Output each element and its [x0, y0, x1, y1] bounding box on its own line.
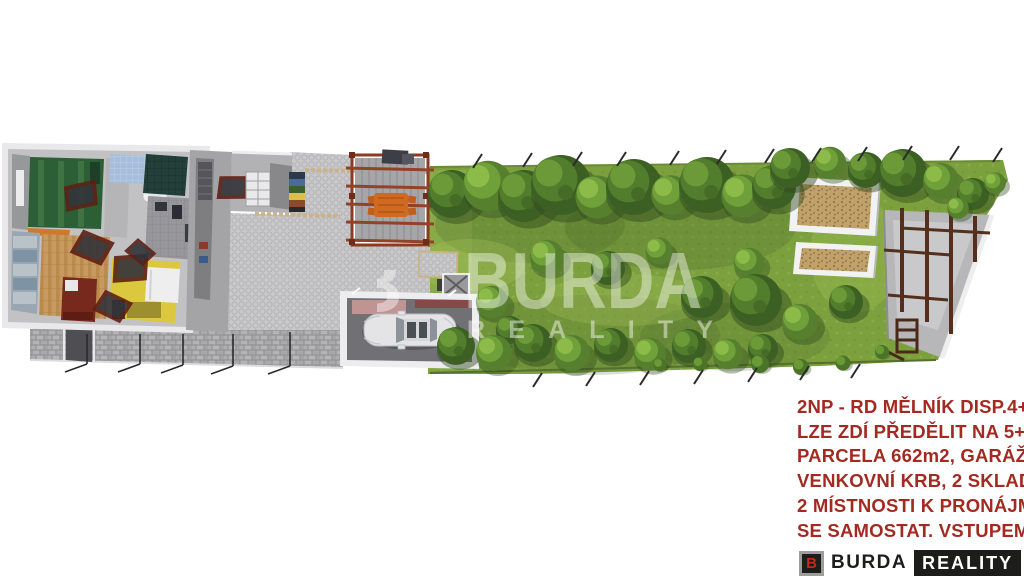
bathroom-blue-tiles [109, 154, 146, 184]
logo-brand-name: BURDA [831, 552, 907, 574]
real-estate-listing-image: B BURDA REALITY 2NP - RD MĚLNÍK DISP.4+1… [0, 0, 1024, 579]
house-upper-floor-cutaway [2, 143, 210, 333]
burda-reality-logo: B BURDA REALITY [799, 550, 1021, 576]
logo-icon-letter: B [806, 556, 817, 571]
watermark-burda: BURDA [464, 236, 702, 325]
storage-boxes [289, 172, 305, 212]
room-dark-tiles [143, 154, 188, 196]
caption-line-6: SE SAMOSTAT. VSTUPEM [797, 519, 1024, 544]
caption-line-3: PARCELA 662m2, GARÁŽ, [797, 444, 1024, 469]
storage-structure-frame [884, 208, 992, 360]
caption-line-4: VENKOVNÍ KRB, 2 SKLADY [797, 469, 1024, 494]
caption-line-5: 2 MÍSTNOSTI K PRONÁJMU [797, 494, 1024, 519]
caption-line-1: 2NP - RD MĚLNÍK DISP.4+1 [797, 395, 1024, 420]
logo-brand-suffix: REALITY [914, 550, 1021, 576]
property-description: 2NP - RD MĚLNÍK DISP.4+1 LZE ZDÍ PŘEDĚLI… [797, 395, 1024, 543]
pergola-with-outdoor-table [346, 149, 434, 245]
caption-line-2: LZE ZDÍ PŘEDĚLIT NA 5+1 [797, 420, 1024, 445]
wall-gate [66, 327, 92, 362]
window-left [16, 170, 24, 206]
burda-logo-icon: B [799, 551, 824, 576]
